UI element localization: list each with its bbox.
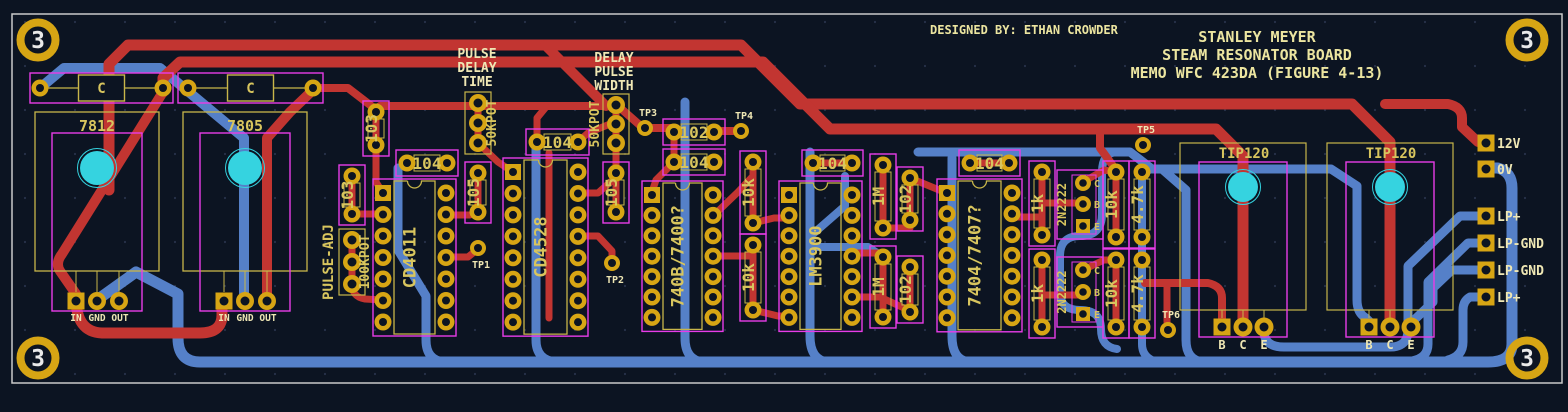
pad-hole [709, 191, 717, 199]
pad-hole [72, 297, 81, 306]
pad-hole [848, 293, 856, 301]
pad-hole [710, 158, 718, 166]
potentiometer[interactable]: 50KPOT [588, 94, 629, 154]
pad-hole [1239, 323, 1248, 332]
pad-hole [509, 275, 517, 283]
pad-hole [348, 210, 356, 218]
pad-hole [574, 138, 582, 146]
pad-hole [379, 211, 387, 219]
potentiometer[interactable]: 50KPOT [465, 92, 500, 154]
transistor-label: 2N2222 [1055, 183, 1069, 226]
pad-hole [1139, 141, 1147, 149]
pad-hole [906, 263, 914, 271]
pad-hole [574, 211, 582, 219]
silkscreen-header: TIME [461, 75, 492, 90]
pad-hole [943, 293, 951, 301]
pad-hole [442, 254, 450, 262]
pad-hole [612, 101, 621, 110]
pin-letter: E [1094, 222, 1100, 233]
pad-hole [348, 280, 357, 289]
pad-hole [1079, 200, 1087, 208]
pad-hole [879, 224, 887, 232]
reg-pin-label: GND [88, 313, 105, 324]
connector-label: LP+ [1497, 291, 1521, 306]
reg-label: 7812 [79, 117, 115, 135]
pad-hole [749, 241, 757, 249]
pad-hole [1008, 272, 1016, 280]
pad-hole [943, 231, 951, 239]
pad-hole [1038, 231, 1046, 239]
testpoint-label: TP1 [472, 260, 490, 271]
pad-hole [1112, 323, 1120, 331]
pad-hole [1008, 189, 1016, 197]
pad-hole [474, 244, 482, 252]
silkscreen-header: WIDTH [594, 79, 633, 94]
pad-hole [709, 232, 717, 240]
tip-pin-label: B [1218, 338, 1225, 352]
pot-function-label: PULSE-ADJ [321, 224, 337, 300]
pad-hole [379, 189, 387, 197]
pad-hole [574, 297, 582, 305]
pad-hole [612, 208, 620, 216]
cap-label: C [246, 81, 254, 97]
pad-hole [574, 275, 582, 283]
pad-hole [785, 313, 793, 321]
connector-label: LP+ [1497, 210, 1521, 225]
pad-hole [943, 272, 951, 280]
pad-hole [403, 159, 411, 167]
resistor-value: 102 [896, 185, 915, 214]
pad-hole [1482, 139, 1491, 148]
resistor-value: 102 [896, 275, 915, 304]
pad-hole [379, 275, 387, 283]
pad-hole [943, 314, 951, 322]
edge-connector-pin[interactable]: LP-GND [1478, 235, 1545, 253]
pad-hole [509, 211, 517, 219]
connector-label: 12V [1497, 137, 1521, 152]
pad-hole [442, 232, 450, 240]
resistor-value: 104 [543, 133, 572, 152]
pad-hole [1138, 168, 1146, 176]
tip-pin-label: C [1386, 338, 1393, 352]
pot-label: 50KPOT [485, 99, 500, 146]
resistor-value: 1k [1028, 194, 1047, 214]
silkscreen-header: PULSE [594, 65, 633, 80]
mounting-hole-number: 3 [31, 346, 45, 372]
pad-hole [608, 259, 616, 267]
pad-hole [1138, 233, 1146, 241]
pad-hole [93, 297, 102, 306]
pad-hole [670, 158, 678, 166]
pad-hole [442, 189, 450, 197]
pad-hole [509, 168, 517, 176]
pad-hole [648, 211, 656, 219]
pad-hole [709, 293, 717, 301]
pad-hole [574, 189, 582, 197]
pad-hole [574, 318, 582, 326]
pad-hole [1005, 159, 1013, 167]
pad-hole [442, 318, 450, 326]
mounting-hole-number: 3 [1520, 28, 1534, 54]
resistor-value: 4.7k [1128, 185, 1147, 224]
pad-hole [612, 169, 620, 177]
pad-hole [943, 251, 951, 259]
tip-pin-label: E [1260, 338, 1267, 352]
testpoint-label: TP6 [1162, 310, 1180, 321]
pad-hole [1008, 210, 1016, 218]
edge-connector-pin[interactable]: 12V [1478, 135, 1521, 153]
resistor-value: 10k [1102, 190, 1121, 219]
pad-hole [966, 159, 974, 167]
pad-hole [574, 232, 582, 240]
silkscreen-header: PULSE [457, 47, 496, 62]
edge-connector-pin[interactable]: LP+ [1478, 289, 1521, 307]
pad-hole [574, 168, 582, 176]
pad-hole [785, 293, 793, 301]
resistor-value: 4.7k [1128, 274, 1147, 313]
pad-hole [1112, 233, 1120, 241]
pad-hole [848, 159, 856, 167]
pad-hole [1038, 168, 1046, 176]
tip-pin-label: B [1365, 338, 1372, 352]
pad-hole [442, 211, 450, 219]
pad-hole [348, 236, 357, 245]
resistor-value: 102 [680, 123, 709, 142]
resistor-value: 1M [869, 277, 888, 296]
pad-hole [906, 308, 914, 316]
pad-hole [906, 216, 914, 224]
tip-label: TIP120 [1219, 146, 1270, 162]
pot-label: 50KPOT [588, 100, 603, 147]
pad-hole [785, 232, 793, 240]
pad-hole [848, 232, 856, 240]
pad-hole [442, 297, 450, 305]
resistor-value: 104 [975, 154, 1004, 173]
resistor-value: 10k [739, 178, 758, 207]
reg-pin-label: GND [236, 313, 253, 324]
reg-pin-label: IN [70, 313, 82, 324]
pad-hole [309, 84, 317, 92]
pad-hole [220, 297, 229, 306]
pad-hole [115, 297, 124, 306]
pad-hole [785, 191, 793, 199]
pad-hole [1079, 179, 1087, 187]
tip-label: TIP120 [1366, 146, 1417, 162]
pad-hole [241, 297, 250, 306]
pad-hole [612, 120, 621, 129]
connector-label: 0V [1497, 163, 1513, 178]
reg-pin-label: OUT [111, 313, 128, 324]
resistor-value: 10k [739, 263, 758, 292]
pad-hole [1112, 168, 1120, 176]
pad-hole [848, 191, 856, 199]
silkscreen-header: DELAY [594, 51, 633, 66]
testpoint-label: TP4 [735, 111, 753, 122]
resistor-value: 105 [464, 178, 483, 207]
pad-hole [1112, 256, 1120, 264]
pad-hole [263, 297, 272, 306]
pad-hole [379, 318, 387, 326]
resistor-value: 10k [1102, 279, 1121, 308]
pad-hole [612, 139, 621, 148]
pad-hole [442, 275, 450, 283]
pad-hole [1079, 310, 1087, 318]
pad-hole [348, 172, 356, 180]
pad-hole [1365, 323, 1374, 332]
pad-hole [1038, 256, 1046, 264]
edge-connector-pin[interactable]: LP+ [1478, 208, 1521, 226]
pad-hole [648, 313, 656, 321]
resistor-value: 104 [413, 154, 442, 173]
pad-hole [785, 273, 793, 281]
pin-letter: B [1094, 288, 1100, 299]
pad-hole [848, 211, 856, 219]
ic-label: 740B/7400? [669, 205, 689, 307]
pad-hole [749, 306, 757, 314]
pad-hole [533, 138, 541, 146]
testpoint-label: TP5 [1137, 125, 1155, 136]
pad-hole [159, 84, 167, 92]
tip-pin-label: C [1239, 338, 1246, 352]
pin-letter: C [1094, 266, 1100, 277]
mounting-hole-number: 3 [1520, 346, 1534, 372]
pad-hole [809, 159, 817, 167]
pad-hole [443, 159, 451, 167]
pad-hole [509, 254, 517, 262]
pad-hole [848, 313, 856, 321]
ic-label: CD4011 [401, 227, 421, 288]
pad-hole [1260, 323, 1269, 332]
resistor-value: 104 [680, 153, 709, 172]
connector-label: LP-GND [1497, 264, 1544, 279]
tip-pin-label: E [1407, 338, 1414, 352]
pad-hole [474, 169, 482, 177]
pad-hole [710, 128, 718, 136]
pad-hole [709, 273, 717, 281]
pad-hole [1008, 314, 1016, 322]
pad-hole [1079, 288, 1087, 296]
pcb-layout[interactable]: CC7812INGNDOUT7805INGNDOUTCD4011CD452874… [0, 0, 1568, 412]
potentiometer[interactable]: 100KPOTPULSE-ADJ [321, 224, 373, 300]
reg-pin-label: IN [218, 313, 230, 324]
pad-hole [184, 84, 192, 92]
pad-hole [1482, 239, 1491, 248]
reg-label: 7805 [227, 117, 263, 135]
pot-label: 100KPOT [358, 234, 373, 289]
pad-hole [648, 232, 656, 240]
transistor-label: 2N2222 [1055, 270, 1069, 313]
pad-hole [474, 119, 483, 128]
pad-hole [670, 128, 678, 136]
pad-hole [943, 210, 951, 218]
pad-hole [848, 273, 856, 281]
connector-label: LP-GND [1497, 237, 1544, 252]
pad-hole [1038, 323, 1046, 331]
pad-hole [737, 127, 745, 135]
heatsink-hole[interactable] [1228, 172, 1258, 202]
pad-hole [574, 254, 582, 262]
pad-hole [906, 174, 914, 182]
ic-label: LM3900 [807, 225, 827, 286]
pad-hole [474, 208, 482, 216]
pin-letter: E [1094, 310, 1100, 321]
heatsink-hole[interactable] [1375, 172, 1405, 202]
pad-hole [1482, 212, 1491, 221]
reg-pin-label: OUT [259, 313, 276, 324]
resistor-value: 105 [602, 178, 621, 207]
pad-hole [879, 313, 887, 321]
pin-letter: C [1094, 179, 1100, 190]
pad-hole [1482, 266, 1491, 275]
pad-hole [943, 189, 951, 197]
pad-hole [1407, 323, 1416, 332]
ic-label: CD4528 [532, 216, 552, 277]
pad-hole [474, 99, 483, 108]
pad-hole [879, 161, 887, 169]
pin-letter: B [1094, 200, 1100, 211]
pad-hole [785, 211, 793, 219]
pad-hole [1218, 323, 1227, 332]
pad-hole [879, 253, 887, 261]
pad-hole [1079, 266, 1087, 274]
pad-hole [785, 252, 793, 260]
ic-label: 7404/7407? [966, 204, 986, 306]
pad-hole [1386, 323, 1395, 332]
pad-hole [848, 252, 856, 260]
pad-hole [1482, 293, 1491, 302]
pad-hole [648, 191, 656, 199]
testpoint-label: TP3 [639, 108, 657, 119]
pad-hole [1138, 256, 1146, 264]
pad-hole [1482, 165, 1491, 174]
testpoint-label: TP2 [606, 275, 624, 286]
pcb-editor-canvas[interactable]: CC7812INGNDOUT7805INGNDOUTCD4011CD452874… [0, 0, 1568, 412]
pad-hole [749, 219, 757, 227]
pad-hole [509, 297, 517, 305]
pad-hole [641, 124, 649, 132]
pad-hole [509, 189, 517, 197]
pad-hole [1008, 293, 1016, 301]
pad-hole [1008, 231, 1016, 239]
pad-hole [648, 273, 656, 281]
pad-hole [348, 258, 357, 267]
pad-hole [749, 158, 757, 166]
heatsink-hole[interactable] [80, 151, 114, 185]
pad-hole [36, 84, 44, 92]
pad-hole [1079, 222, 1087, 230]
edge-connector-pin[interactable]: LP-GND [1478, 262, 1545, 280]
silkscreen-header: DELAY [457, 61, 496, 76]
pad-hole [648, 252, 656, 260]
pad-hole [474, 139, 483, 148]
pad-hole [709, 252, 717, 260]
pad-hole [648, 293, 656, 301]
pad-hole [509, 318, 517, 326]
resistor-value: 103 [362, 114, 381, 143]
pad-hole [1138, 323, 1146, 331]
pad-hole [379, 254, 387, 262]
pad-hole [709, 313, 717, 321]
pad-hole [379, 232, 387, 240]
pad-hole [709, 211, 717, 219]
cap-label: C [97, 81, 105, 97]
pad-hole [1008, 251, 1016, 259]
pad-hole [379, 297, 387, 305]
resistor-value: 104 [818, 154, 847, 173]
heatsink-hole[interactable] [228, 151, 262, 185]
pad-hole [509, 232, 517, 240]
pad-hole [1164, 326, 1172, 334]
resistor-value: 1k [1028, 284, 1047, 304]
mounting-hole-number: 3 [31, 28, 45, 54]
resistor-value: 103 [338, 181, 357, 210]
resistor-value: 1M [869, 187, 888, 206]
